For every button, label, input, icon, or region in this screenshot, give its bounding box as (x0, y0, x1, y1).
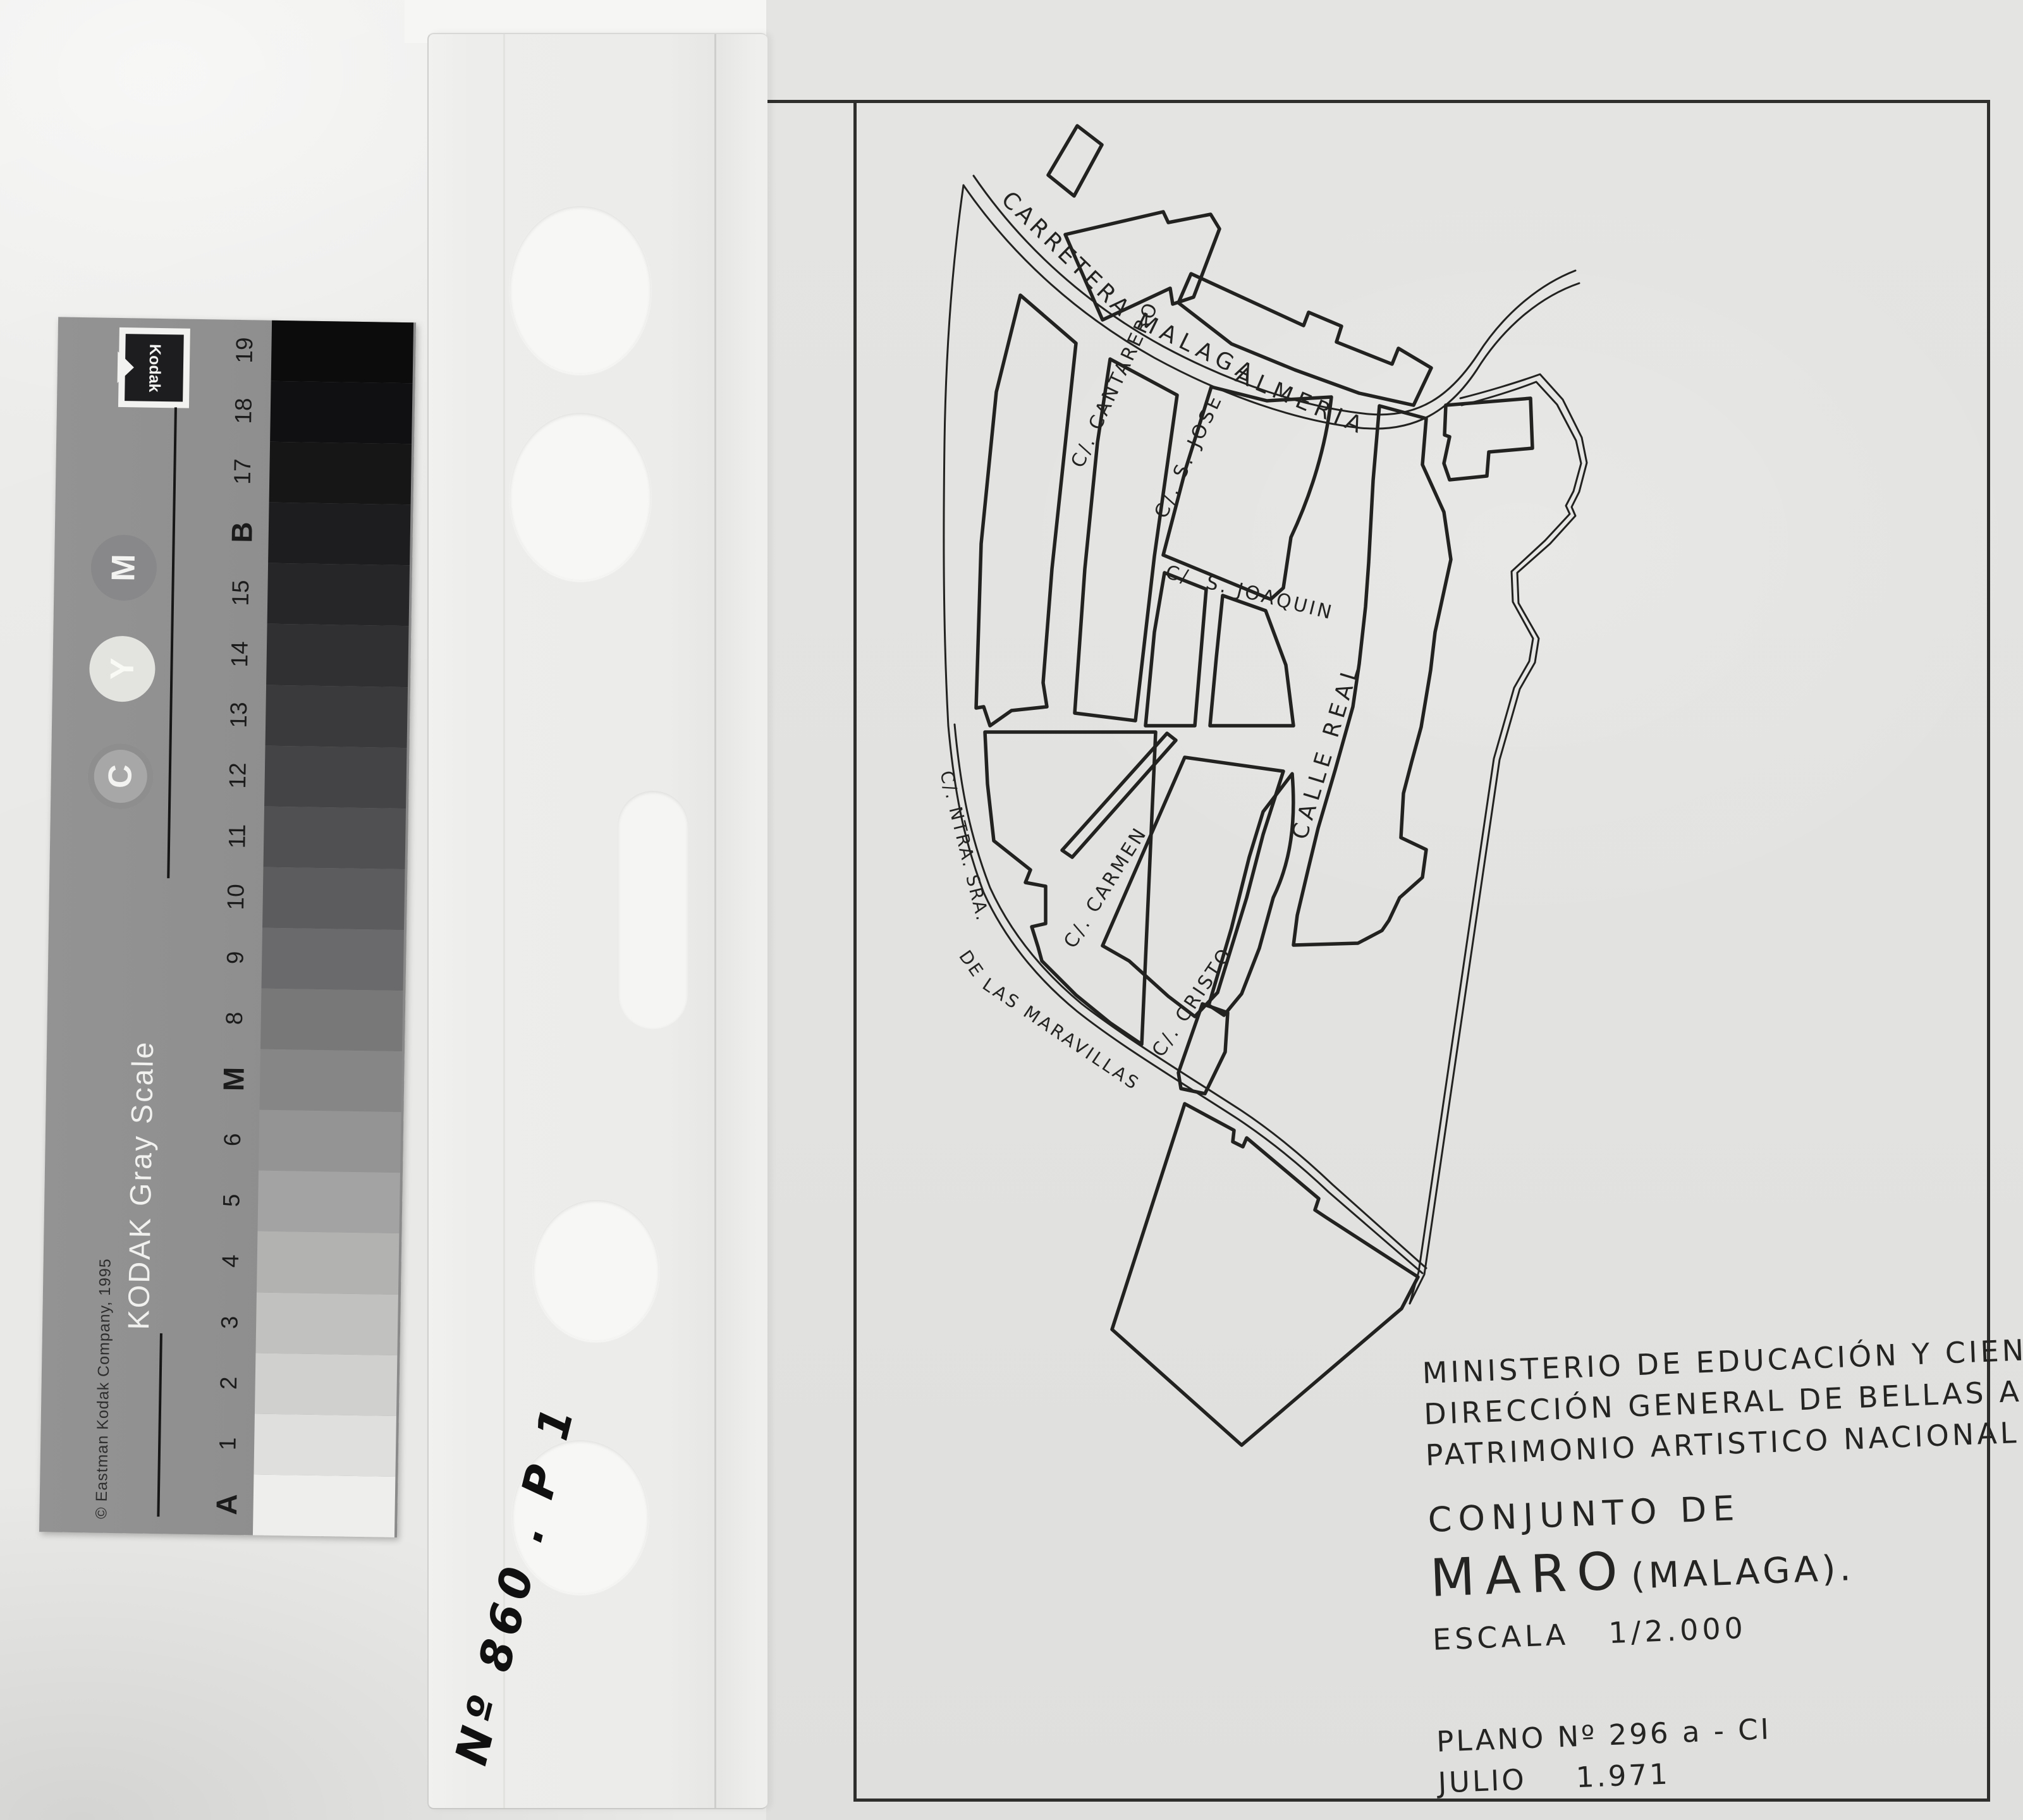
card-rule-lower (157, 1333, 162, 1517)
gray-patch (255, 1292, 398, 1355)
gray-patch (264, 806, 406, 869)
gray-patch (267, 563, 410, 626)
punched-hole-1 (510, 206, 651, 374)
step-number: B (217, 502, 266, 563)
step-number: 3 (205, 1292, 254, 1353)
gray-patch (260, 1049, 402, 1113)
step-number: 6 (208, 1109, 257, 1171)
kodak-logo-notch (118, 351, 135, 383)
card-title: KODAK Gray Scale (121, 874, 162, 1330)
step-number: 19 (221, 319, 270, 381)
gray-patch (264, 745, 406, 809)
plan-scale-label: ESCALA (1432, 1618, 1570, 1657)
gray-patch (262, 867, 405, 930)
plan-date-year: 1.971 (1575, 1757, 1671, 1795)
step-number: 14 (216, 623, 265, 685)
gray-patch (257, 1171, 400, 1234)
ink-dot-yellow-label: Y (103, 657, 142, 680)
ink-dot-cyan-label: C (101, 764, 140, 789)
punched-hole-2 (510, 413, 651, 581)
plan-title-place-name: MARO (1429, 1541, 1629, 1609)
gray-patch (266, 624, 408, 687)
step-number: 5 (207, 1170, 256, 1231)
ink-dot-cyan: C (87, 743, 154, 810)
step-number: 11 (213, 805, 262, 867)
gray-patch (271, 321, 413, 384)
ink-dot-magenta-label: M (105, 554, 144, 582)
gray-patch (270, 381, 412, 444)
step-number: 12 (214, 745, 263, 806)
frame-top-line-overshoot (762, 100, 857, 103)
plan-date-month: JULIO (1438, 1762, 1527, 1799)
step-number: M (209, 1048, 259, 1109)
step-number: 10 (212, 866, 261, 927)
step-number: 18 (219, 381, 269, 442)
gray-scale-patch-strip (253, 321, 413, 1537)
gray-patch (266, 685, 408, 748)
punched-hole-3 (533, 1200, 659, 1341)
step-number: 15 (217, 563, 266, 624)
kodak-logo: Kodak (118, 327, 190, 408)
step-number: A (202, 1474, 252, 1535)
gray-patch (259, 1110, 401, 1173)
gray-patch (255, 1353, 397, 1416)
step-number: 1 (203, 1413, 252, 1474)
step-number: 13 (215, 684, 264, 745)
sleeve-fold-line (714, 34, 716, 1808)
plan-title-place-suffix: (MALAGA). (1630, 1548, 1855, 1597)
gray-patch (268, 503, 410, 566)
gray-patch (257, 1231, 399, 1295)
plan-title-place: MARO (MALAGA). (1429, 1527, 1988, 1609)
plan-scale: ESCALA 1/2.000 (1432, 1601, 1989, 1657)
gray-patch (260, 989, 403, 1052)
card-copyright: © Eastman Kodak Company, 1995 (92, 1178, 116, 1519)
card-rule-upper (167, 407, 177, 878)
step-number: 9 (211, 927, 260, 988)
ink-dot-magenta: M (90, 534, 157, 601)
gray-patch (262, 928, 404, 991)
step-number: 4 (206, 1231, 255, 1292)
title-block: MINISTERIO DE EDUCACIÓN Y CIENCIA DIRECC… (1422, 1334, 1995, 1799)
sleeve-slot (618, 791, 688, 1029)
gray-patch (254, 1414, 396, 1477)
step-number: 17 (219, 441, 268, 503)
step-number: 8 (210, 987, 259, 1049)
ink-dot-yellow: Y (89, 635, 156, 702)
step-number: 2 (204, 1352, 254, 1414)
plan-scale-value: 1/2.000 (1608, 1611, 1747, 1650)
kodak-gray-scale-card: Kodak KODAK Gray Scale © Eastman Kodak C… (39, 317, 416, 1537)
gray-patch (253, 1474, 395, 1537)
kodak-logo-text: Kodak (145, 343, 164, 392)
gray-patch (269, 442, 412, 505)
